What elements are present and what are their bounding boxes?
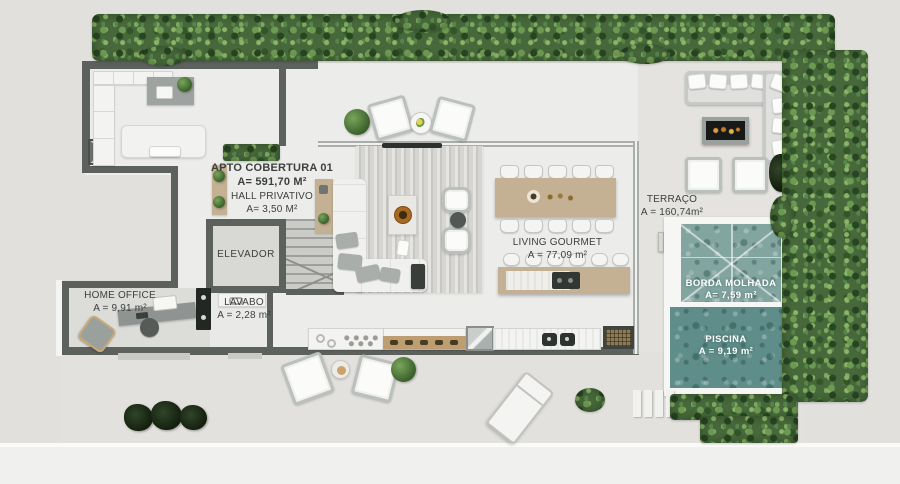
table-centerpiece	[545, 192, 579, 202]
island-cooktop	[552, 272, 580, 289]
room-name: LAVABO	[196, 296, 292, 309]
garden-right-wall	[782, 50, 868, 402]
living-armchair-2	[442, 227, 471, 254]
kitchen-island-bar	[498, 267, 630, 294]
hedge-blob-5	[575, 388, 605, 412]
sink-basin-2	[560, 333, 575, 346]
wall-wing-top	[62, 281, 178, 288]
room-area: A = 9,19 m²	[670, 346, 782, 358]
sofa-pillow-1	[335, 232, 359, 250]
office-chair	[140, 318, 159, 337]
armchair-cushion	[373, 101, 409, 136]
dining-chair	[595, 165, 614, 179]
pool-step	[633, 390, 641, 417]
kitchen-left-counter	[93, 85, 115, 166]
table-plate	[527, 190, 540, 203]
faucet-dot	[565, 337, 569, 341]
room-area: A = 77,09 m²	[500, 249, 615, 262]
hall-planter-hedge	[223, 144, 280, 161]
tv-console	[382, 143, 442, 148]
snack-item	[390, 340, 398, 345]
faucet-dot	[547, 337, 551, 341]
buffet-counter	[308, 328, 384, 350]
room-area: A= 591,70 M²	[194, 175, 350, 189]
dining-chair	[595, 219, 614, 233]
room-area: A = 160,74m²	[617, 206, 727, 219]
sink-counter	[493, 328, 601, 350]
round-side-table	[450, 212, 466, 228]
fire-pit-table	[702, 117, 749, 144]
dining-chair	[500, 219, 519, 233]
hedge-blob-4	[770, 196, 794, 238]
flower-vase	[416, 118, 426, 128]
hedge-blob-1	[140, 46, 186, 66]
room-name: HALL PRIVATIVO	[194, 190, 350, 203]
burner-dot	[557, 278, 562, 283]
dining-chair	[500, 165, 519, 179]
room-name: PISCINA	[670, 334, 782, 346]
label-home-office: HOME OFFICE A = 9,91 m²	[64, 289, 176, 315]
room-name: TERRAÇO	[617, 193, 727, 206]
sofa-pillow-4	[379, 267, 401, 284]
label-apto-cobertura: APTO COBERTURA 01 A= 591,70 M² HALL PRIV…	[194, 161, 350, 216]
label-elevador: ELEVADOR	[206, 248, 286, 261]
coffee-machine	[156, 86, 173, 99]
bottom-margin	[0, 447, 900, 484]
armchair-cushion	[286, 357, 328, 399]
room-name: LIVING GOURMET	[500, 236, 615, 249]
reflection-line	[681, 257, 781, 259]
label-borda-molhada: BORDA MOLHADA A= 7,59 m²	[679, 278, 783, 303]
pool-step	[655, 390, 663, 417]
label-lavabo: LAVABO A = 2,28 m²	[196, 296, 292, 322]
deck-plant	[391, 357, 416, 382]
armchair-cushion	[357, 360, 395, 398]
bench-cushion	[149, 146, 181, 157]
terrace-armchair-2	[732, 157, 768, 193]
wall-kitchen-step-h	[82, 166, 178, 173]
table-decor	[337, 366, 346, 375]
outdoor-pillow	[708, 73, 727, 90]
room-name: APTO COBERTURA 01	[194, 161, 350, 175]
wood-tray	[394, 206, 412, 224]
dining-chair	[572, 219, 591, 233]
coffee-table	[388, 195, 417, 235]
armchair-cushion	[447, 192, 466, 208]
snack-item	[435, 340, 443, 345]
hedge-blob-2	[395, 10, 451, 32]
plate-stack	[316, 334, 325, 343]
dining-chair	[524, 165, 543, 179]
fireplace-speaker	[411, 264, 425, 289]
room-area: A = 9,91 m²	[64, 302, 176, 315]
glass-wall-right	[633, 141, 639, 354]
dining-chair	[548, 165, 567, 179]
room-area: A= 3,50 M²	[194, 203, 350, 216]
cup-set	[343, 334, 381, 347]
armchair-cushion	[435, 102, 470, 137]
deck-dark-plant-2	[151, 401, 182, 430]
deck-dark-plant-1	[124, 404, 153, 431]
wall-kitchen-step-v	[171, 166, 178, 288]
plate-stack	[327, 339, 336, 348]
armchair-cushion	[447, 232, 466, 249]
room-area: A= 7,59 m²	[679, 290, 783, 302]
lounger-fold-line	[517, 385, 543, 406]
room-name: HOME OFFICE	[64, 289, 176, 302]
snack-item	[450, 340, 458, 345]
dining-chair	[548, 219, 567, 233]
terrace-plant-left	[344, 109, 370, 135]
terrace-armchair-1	[685, 157, 722, 193]
burner-dot	[568, 278, 573, 283]
hedge-blob-3	[620, 44, 670, 64]
armchair-cushion	[737, 162, 763, 188]
pool-step	[644, 390, 652, 417]
door-threshold-1	[118, 353, 190, 360]
label-living-gourmet: LIVING GOURMET A = 77,09 m²	[500, 236, 615, 262]
outdoor-pillow	[729, 73, 748, 89]
living-armchair-1	[442, 187, 471, 213]
dining-chair	[524, 219, 543, 233]
dining-table	[495, 178, 616, 217]
snack-item	[420, 340, 428, 345]
deck-side-table	[331, 360, 350, 379]
label-piscina: PISCINA A = 9,19 m²	[670, 334, 782, 359]
door-threshold-2	[228, 353, 262, 359]
hedge-top	[92, 14, 835, 61]
fire-pit-flames	[706, 121, 745, 140]
room-area: A = 2,28 m²	[196, 309, 292, 322]
room-name: BORDA MOLHADA	[679, 278, 783, 290]
decor-object	[396, 239, 410, 257]
floor-plan-canvas: APTO COBERTURA 01 A= 591,70 M² HALL PRIV…	[0, 0, 900, 484]
snack-item	[405, 340, 413, 345]
deck-dark-plant-3	[180, 405, 207, 430]
grill	[603, 326, 634, 349]
outdoor-pillow	[687, 73, 706, 90]
dining-chair	[572, 165, 591, 179]
sink-basin-1	[542, 333, 557, 346]
steel-appliance	[466, 326, 494, 351]
snack-bar-wood-top	[383, 336, 466, 349]
wall-hall-right	[279, 68, 286, 146]
room-name: ELEVADOR	[206, 248, 286, 261]
hedge-below-pool-2	[700, 416, 798, 443]
armchair-cushion	[690, 162, 717, 188]
kitchen-bench	[121, 125, 206, 158]
kitchen-plant	[177, 77, 192, 92]
label-terraco: TERRAÇO A = 160,74m²	[617, 193, 727, 219]
